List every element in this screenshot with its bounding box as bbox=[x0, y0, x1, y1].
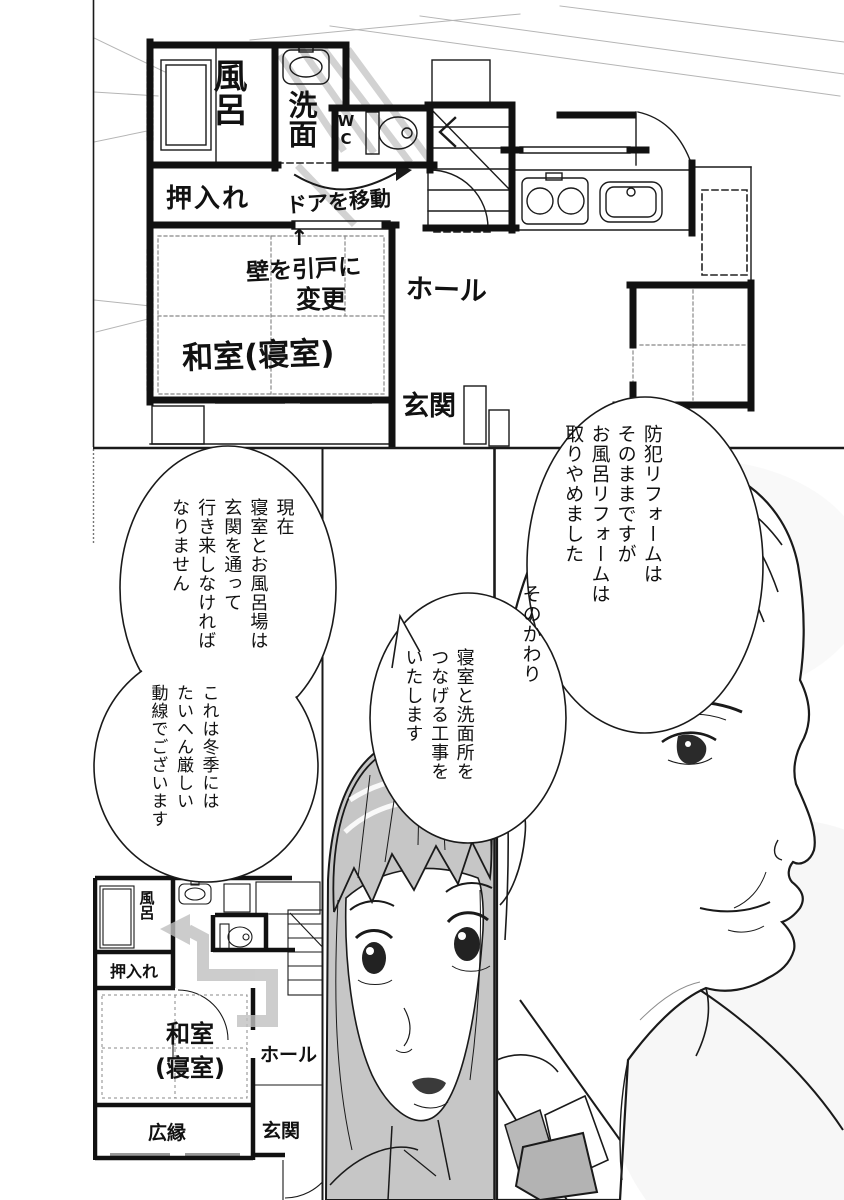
annotation-arrow-up: ↑ bbox=[290, 226, 308, 251]
label-hall-bottom: ホール bbox=[260, 1040, 317, 1067]
label-bath-bottom: 風呂 bbox=[138, 890, 155, 920]
label-closet-bottom: 押入れ bbox=[110, 958, 158, 982]
label-bath-top: 風呂 bbox=[210, 58, 244, 126]
woman-right-eye bbox=[454, 927, 480, 961]
speech-text-mid: 寝室と洗面所を つなげる工事を いたします bbox=[400, 648, 477, 781]
speech-text-top-right: 防犯リフォームは そのままですが お風呂リフォームは 取りやめました bbox=[560, 424, 665, 604]
manga-page: 防犯リフォームは そのままですが お風呂リフォームは 取りやめました そのかわり… bbox=[0, 0, 844, 1200]
annotation-change-wall-2: 変更 bbox=[296, 280, 346, 316]
speech-text-left-upper: 現在 寝室とお風呂場は 玄関を通って 行き来しなければ なりません bbox=[166, 498, 296, 650]
label-washroom-top: 洗面 bbox=[286, 90, 315, 148]
manga-art-scene bbox=[0, 0, 844, 1200]
label-entrance-top: 玄関 bbox=[402, 384, 456, 423]
woman-left-eye bbox=[362, 942, 386, 974]
floor-plan-large bbox=[93, 0, 844, 448]
speech-text-left-lower: これは冬季には たいへん厳しい 動線でございます bbox=[144, 684, 221, 828]
label-japanese-room-top: 和室(寝室) bbox=[181, 327, 335, 377]
label-japanese-room-bottom: 和室 (寝室) bbox=[134, 1018, 246, 1085]
label-wc-top: WC bbox=[338, 112, 353, 148]
label-hall-top: ホール bbox=[405, 267, 487, 309]
label-entrance-bottom: 玄関 bbox=[262, 1116, 300, 1143]
label-veranda-bottom: 広縁 bbox=[148, 1118, 186, 1145]
label-closet-top: 押入れ bbox=[166, 178, 250, 215]
speech-text-aside: そのかわり bbox=[517, 584, 544, 684]
